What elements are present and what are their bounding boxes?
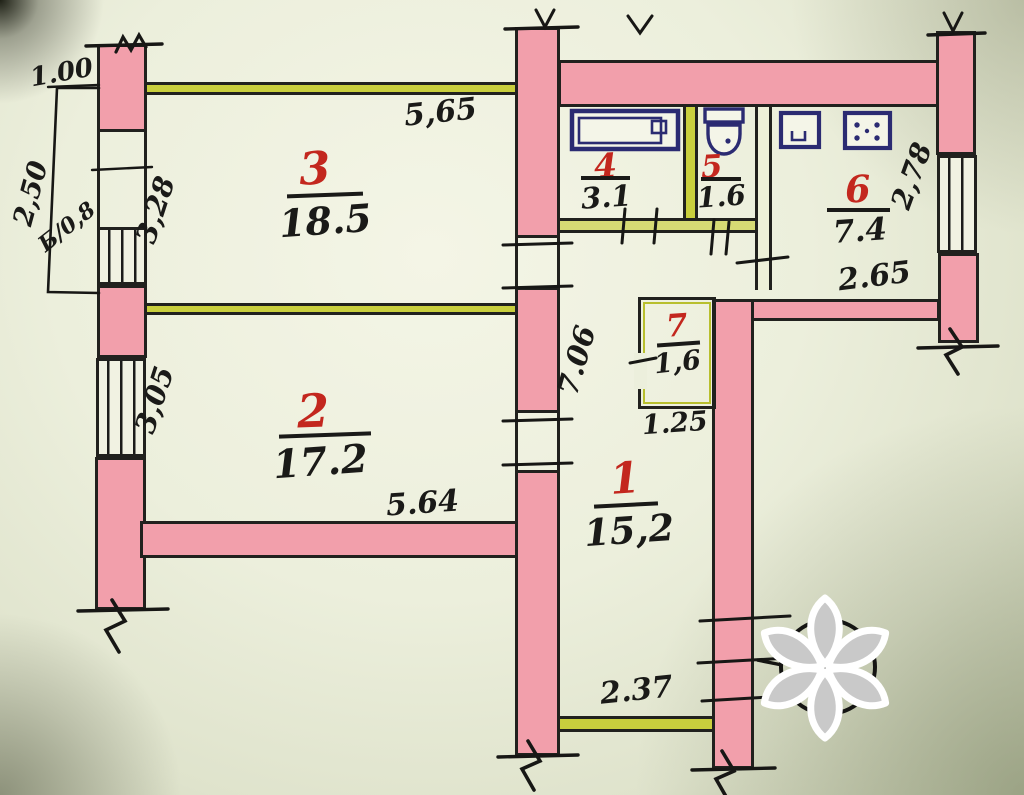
room7-number: 7	[665, 310, 689, 342]
fixtures	[572, 109, 890, 154]
toilet-icon	[705, 109, 743, 154]
room4-area: 3.1	[580, 181, 632, 213]
dim-1-25: 1.25	[641, 408, 708, 440]
room6-number: 6	[844, 170, 872, 208]
room5-area: 1.6	[696, 181, 747, 212]
dim-5-64: 5.64	[385, 486, 460, 521]
break-mark	[716, 751, 734, 795]
floor-plan-photo: 3 18.5 2 17.2 1 15,2 4 3.1 5 1.6 6 7.4 7…	[0, 0, 1024, 795]
room2-number: 2	[296, 387, 330, 434]
balcony-outline	[48, 88, 99, 293]
dim-2-37: 2.37	[599, 672, 675, 709]
break-mark	[522, 741, 540, 790]
dim-5-65: 5,65	[403, 94, 479, 131]
break-mark	[946, 329, 962, 374]
dim-2-65: 2.65	[836, 258, 912, 297]
room1-area: 15,2	[583, 509, 675, 552]
sink-icon	[781, 113, 819, 147]
room7-area: 1,6	[653, 347, 703, 379]
room1-number: 1	[609, 457, 642, 502]
room3-number: 3	[298, 145, 332, 192]
stove-icon	[845, 113, 890, 148]
room6-area: 7.4	[832, 214, 888, 249]
asterisk-watermark	[742, 578, 912, 768]
room3-area: 18.5	[278, 199, 373, 243]
break-mark	[106, 600, 125, 652]
room2-area: 17.2	[272, 440, 369, 486]
